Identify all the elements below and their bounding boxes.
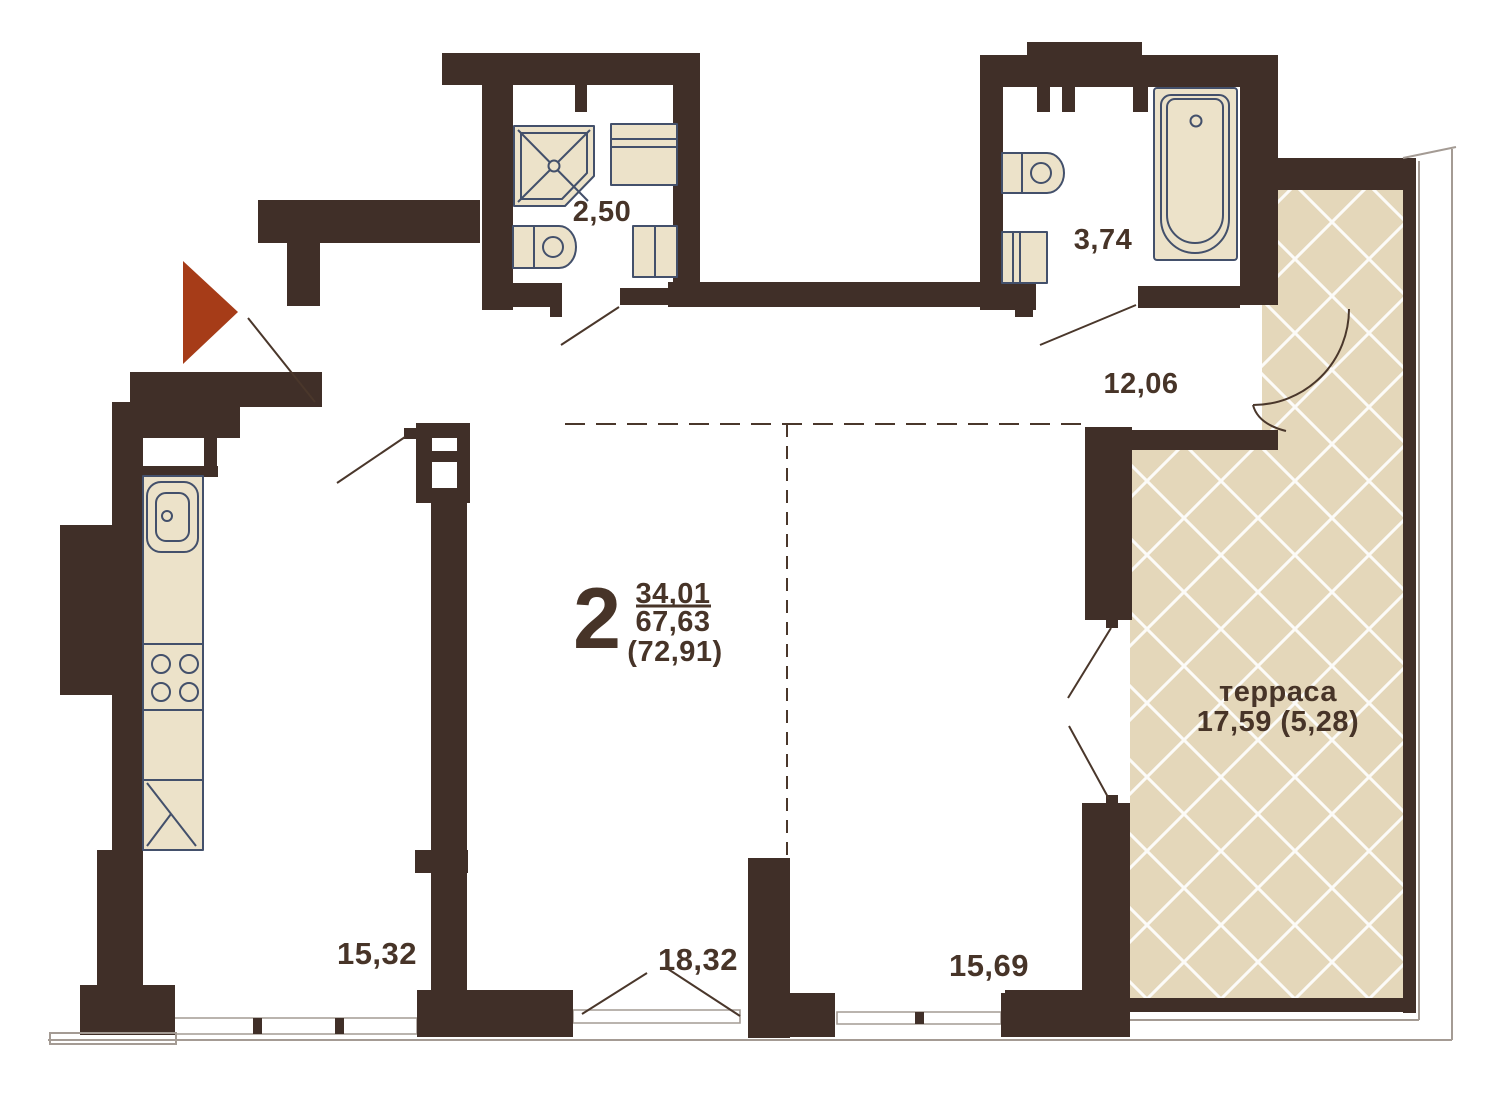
entrance-arrow-icon: [183, 261, 238, 364]
floor-plan: 2,50 3,74 12,06 15,32 18,32 15,69 террас…: [0, 0, 1500, 1113]
cabinet-icon: [633, 226, 677, 277]
label-shower-room: 2,50: [573, 196, 631, 228]
area-total: (72,91): [627, 636, 722, 668]
label-bedroom: 15,69: [949, 948, 1029, 983]
label-living-room: 18,32: [658, 942, 738, 977]
label-bathroom: 3,74: [1074, 224, 1132, 256]
window-strips: [173, 1010, 1001, 1034]
label-kitchen-living: 15,32: [337, 936, 417, 971]
area-apartment: 67,63: [635, 606, 710, 638]
kitchen-sink-icon: [147, 482, 198, 552]
floor-plan-page: 2,50 3,74 12,06 15,32 18,32 15,69 террас…: [0, 0, 1500, 1113]
cabinet-icon: [1002, 232, 1047, 283]
rooms-count: 2: [573, 571, 621, 667]
washing-machine-icon: [611, 124, 677, 185]
shower-icon: [514, 126, 594, 206]
toilet-icon: [1002, 153, 1064, 193]
label-terrace: терраса: [1219, 676, 1337, 708]
terrace-floor: [1130, 190, 1403, 998]
unit-stats: 2 34,01 67,63 (72,91): [573, 571, 723, 668]
label-terrace-area: 17,59 (5,28): [1197, 706, 1359, 738]
label-hallway: 12,06: [1103, 368, 1178, 400]
toilet-icon: [513, 226, 576, 268]
shaft-holes: [432, 438, 457, 488]
bathtub-icon: [1154, 88, 1237, 260]
